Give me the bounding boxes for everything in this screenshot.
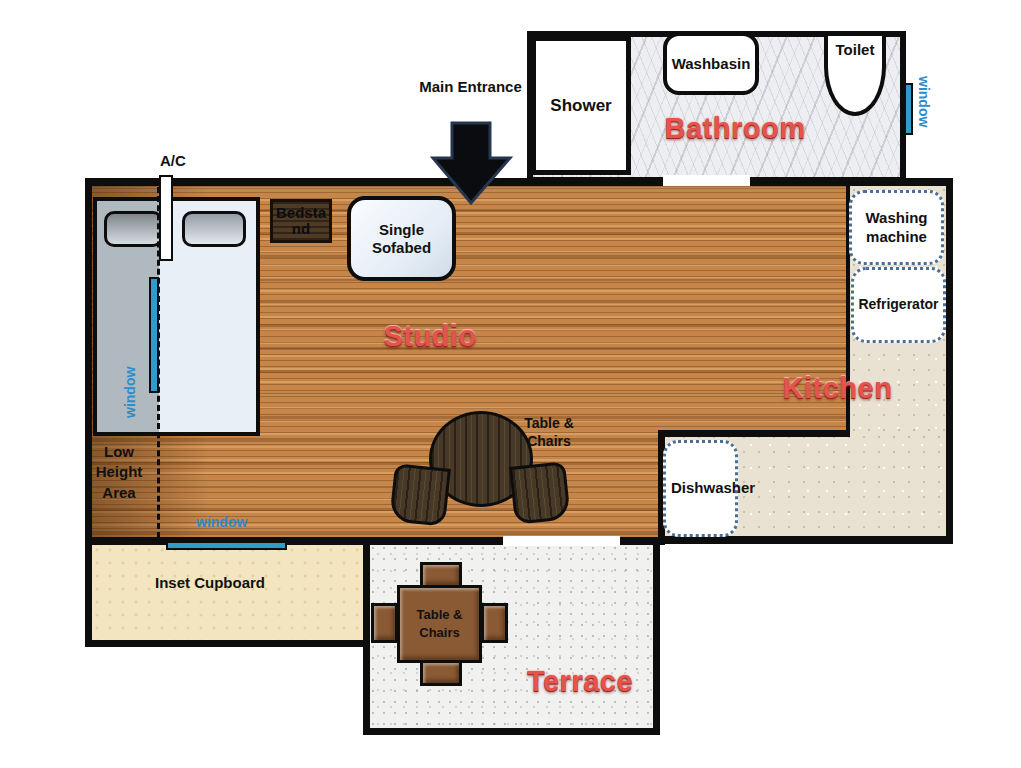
- wall-right-kitchen: [946, 178, 953, 544]
- dishwasher: Dishwasher: [663, 440, 738, 537]
- refrigerator: Refrigerator: [851, 267, 946, 343]
- main-entrance-arrow-icon: [412, 120, 532, 210]
- bathroom-label: Bathroom: [640, 112, 830, 145]
- floor-plan: A/C window Bedstand Single Sofabed Table…: [0, 0, 1021, 768]
- terrace-chair-left: [371, 603, 398, 643]
- washing-machine: Washing machine: [849, 190, 944, 265]
- inset-cupboard-area: [92, 545, 363, 640]
- wall-terrace-right: [653, 544, 660, 735]
- wall-kitchen-step-h: [658, 430, 850, 437]
- terrace-table-label: Table & Chairs: [400, 606, 479, 641]
- bottom-window: [166, 541, 287, 550]
- terrace-chair-right: [481, 603, 508, 643]
- ac-unit: [159, 175, 173, 261]
- low-height-area-label: Low Height Area: [90, 442, 148, 503]
- wall-terrace-left: [363, 544, 370, 735]
- wall-terrace-bottom: [363, 728, 660, 735]
- terrace-door-opening: [503, 536, 620, 546]
- roof-window: [149, 277, 159, 393]
- roof-window-label: window: [122, 328, 138, 418]
- main-entrance-label: Main Entrance: [413, 76, 528, 97]
- pillow-right: [182, 211, 246, 247]
- ac-label: A/C: [160, 152, 186, 169]
- studio-chair-right: [509, 461, 571, 525]
- studio-label: Studio: [340, 320, 520, 353]
- terrace-label: Terrace: [510, 665, 650, 698]
- studio-table-label: Table & Chairs: [514, 414, 584, 450]
- wall-cupboard-bottom: [85, 640, 370, 647]
- pillow-left: [104, 211, 163, 247]
- inset-cupboard-label: Inset Cupboard: [95, 574, 325, 591]
- bottom-window-label: window: [196, 514, 247, 530]
- bathroom-door-opening: [663, 175, 750, 186]
- terrace-table: Table & Chairs: [397, 585, 482, 663]
- wall-left: [85, 178, 92, 647]
- bathroom-window-label: window: [916, 76, 932, 166]
- kitchen-label: Kitchen: [765, 372, 910, 405]
- washbasin: Washbasin: [663, 32, 759, 95]
- bathroom-window: [904, 83, 913, 135]
- terrace-chair-bottom: [420, 660, 462, 686]
- studio-chair-left: [389, 463, 451, 527]
- bedstand: Bedstand: [270, 199, 332, 243]
- wall-bottom-kitchen: [658, 536, 953, 544]
- shower: Shower: [531, 36, 631, 175]
